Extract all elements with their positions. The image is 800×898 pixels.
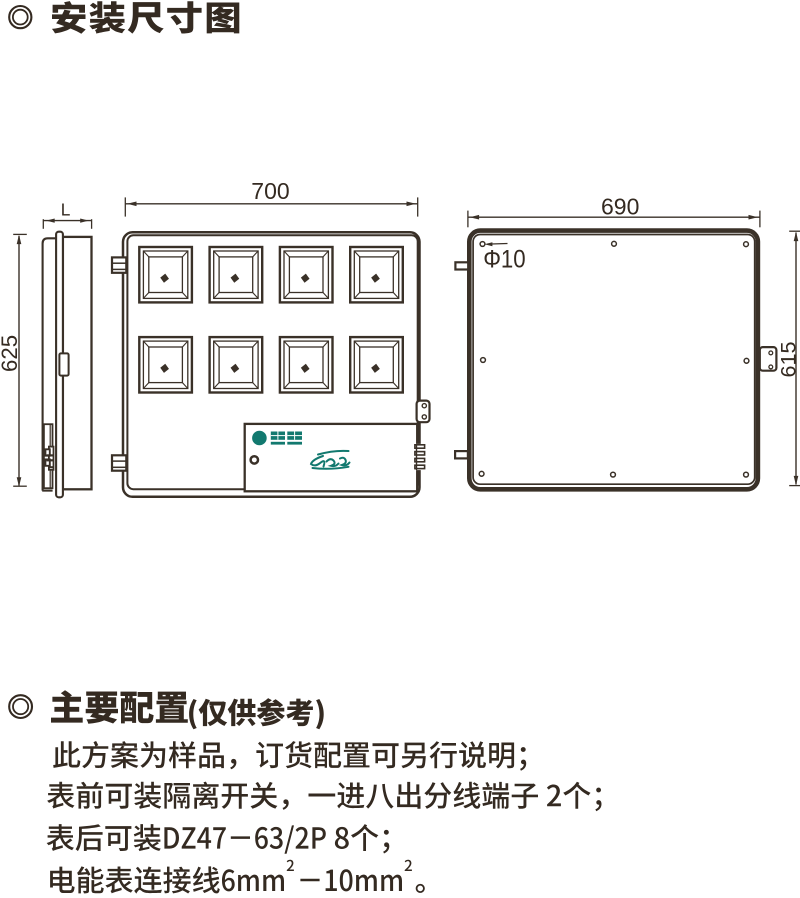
svg-text:L: L: [61, 200, 71, 220]
svg-text:Φ10: Φ10: [483, 246, 526, 274]
svg-text:690: 690: [601, 193, 639, 219]
svg-text:700: 700: [251, 178, 289, 204]
svg-text:625: 625: [0, 335, 22, 372]
svg-text:615: 615: [775, 341, 800, 377]
